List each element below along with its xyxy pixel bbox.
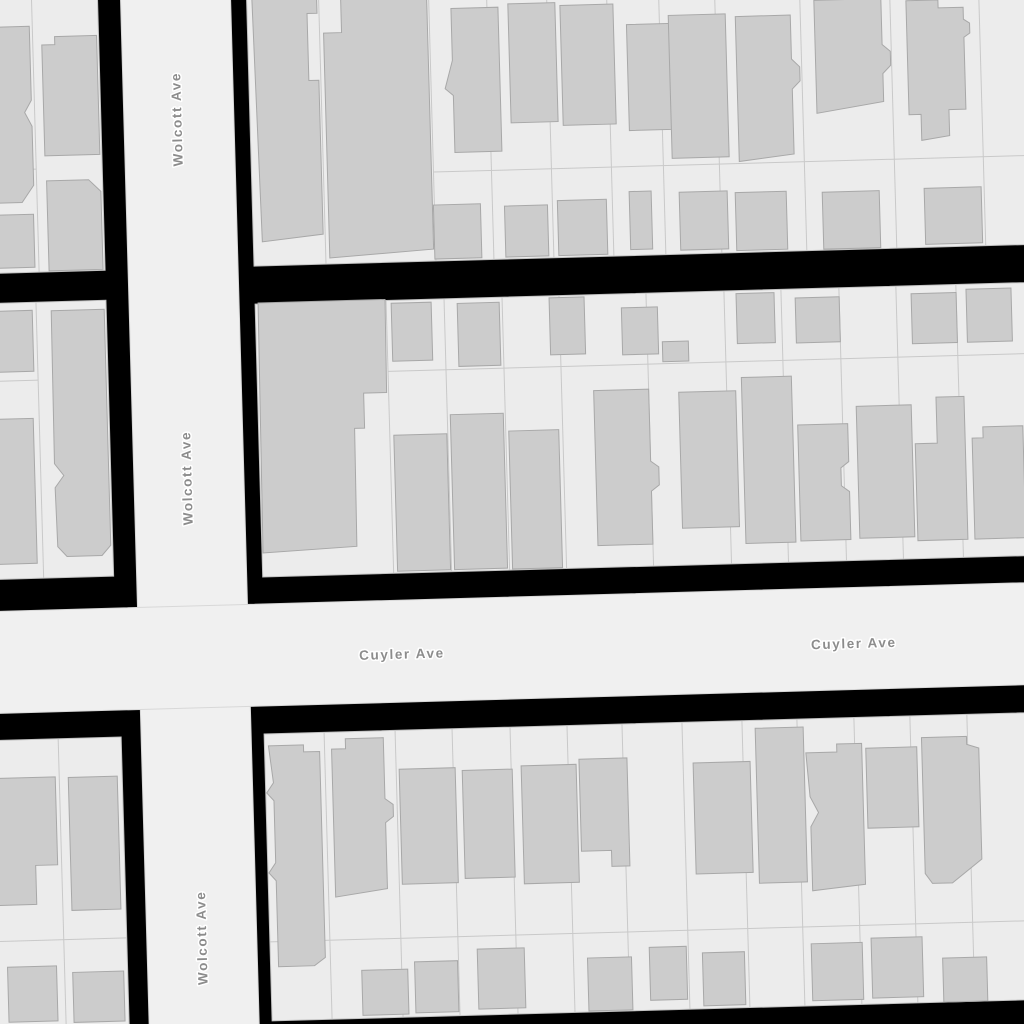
- map-rotated-layer: Wolcott AveWolcott AveWolcott AveCuyler …: [0, 0, 1024, 1024]
- building-footprint: [42, 35, 100, 155]
- building-footprint: [508, 3, 558, 123]
- building-footprint: [921, 736, 982, 884]
- building-footprint: [322, 0, 434, 258]
- building-footprint: [679, 191, 729, 250]
- building-footprint: [47, 179, 103, 270]
- building-footprint: [557, 199, 608, 255]
- building-footprint: [8, 966, 59, 1022]
- building-footprint: [504, 205, 548, 257]
- building-footprint: [943, 957, 988, 1002]
- building-footprint: [871, 937, 924, 998]
- building-footprint: [629, 191, 653, 250]
- building-footprint: [521, 764, 579, 883]
- building-footprint: [579, 758, 630, 867]
- building-footprint: [477, 948, 526, 1009]
- building-footprint: [972, 426, 1024, 539]
- building-footprint: [462, 769, 515, 878]
- building-footprint: [911, 293, 957, 344]
- building-footprint: [702, 952, 745, 1006]
- building-footprint: [391, 302, 433, 361]
- building-footprint: [924, 187, 983, 245]
- building-footprint: [822, 191, 881, 250]
- building-footprint: [662, 341, 689, 362]
- building-footprint: [560, 4, 616, 125]
- building-footprint: [362, 969, 409, 1015]
- building-footprint: [668, 14, 729, 159]
- building-footprint: [866, 747, 919, 828]
- map-canvas[interactable]: Wolcott AveWolcott AveWolcott AveCuyler …: [0, 0, 1024, 1024]
- building-footprint: [755, 727, 807, 883]
- street-label-wolcott-ave: Wolcott Ave: [178, 431, 196, 526]
- building-footprint: [399, 768, 458, 885]
- building-footprint: [450, 413, 507, 569]
- building-footprint: [621, 307, 658, 355]
- building-footprint: [679, 391, 740, 529]
- street-label-wolcott-ave: Wolcott Ave: [168, 72, 186, 167]
- building-footprint: [0, 310, 34, 373]
- map-viewport[interactable]: Wolcott AveWolcott AveWolcott AveCuyler …: [0, 0, 1024, 1024]
- building-footprint: [856, 405, 915, 538]
- building-footprint: [394, 434, 451, 571]
- building-footprint: [433, 204, 481, 259]
- building-footprint: [741, 376, 796, 543]
- building-footprint: [811, 942, 864, 1000]
- building-footprint: [415, 961, 459, 1013]
- building-footprint: [68, 776, 121, 910]
- building-footprint: [73, 971, 125, 1022]
- building-footprint: [966, 288, 1012, 342]
- building-footprint: [549, 297, 586, 355]
- building-footprint: [509, 430, 563, 569]
- street-label-wolcott-ave: Wolcott Ave: [193, 890, 211, 985]
- building-footprint: [649, 946, 687, 1000]
- street-intersection: [139, 605, 250, 708]
- building-footprint: [693, 761, 753, 874]
- street-label-cuyler-ave: Cuyler Ave: [811, 635, 897, 652]
- building-footprint: [736, 293, 775, 344]
- building-footprint: [587, 957, 632, 1011]
- building-footprint: [795, 297, 840, 343]
- building-footprint: [735, 191, 788, 250]
- building-footprint: [0, 214, 35, 269]
- building-footprint: [50, 309, 111, 556]
- street-label-cuyler-ave: Cuyler Ave: [359, 646, 445, 663]
- building-footprint: [814, 0, 892, 113]
- building-footprint: [0, 418, 37, 565]
- building-footprint: [457, 302, 501, 366]
